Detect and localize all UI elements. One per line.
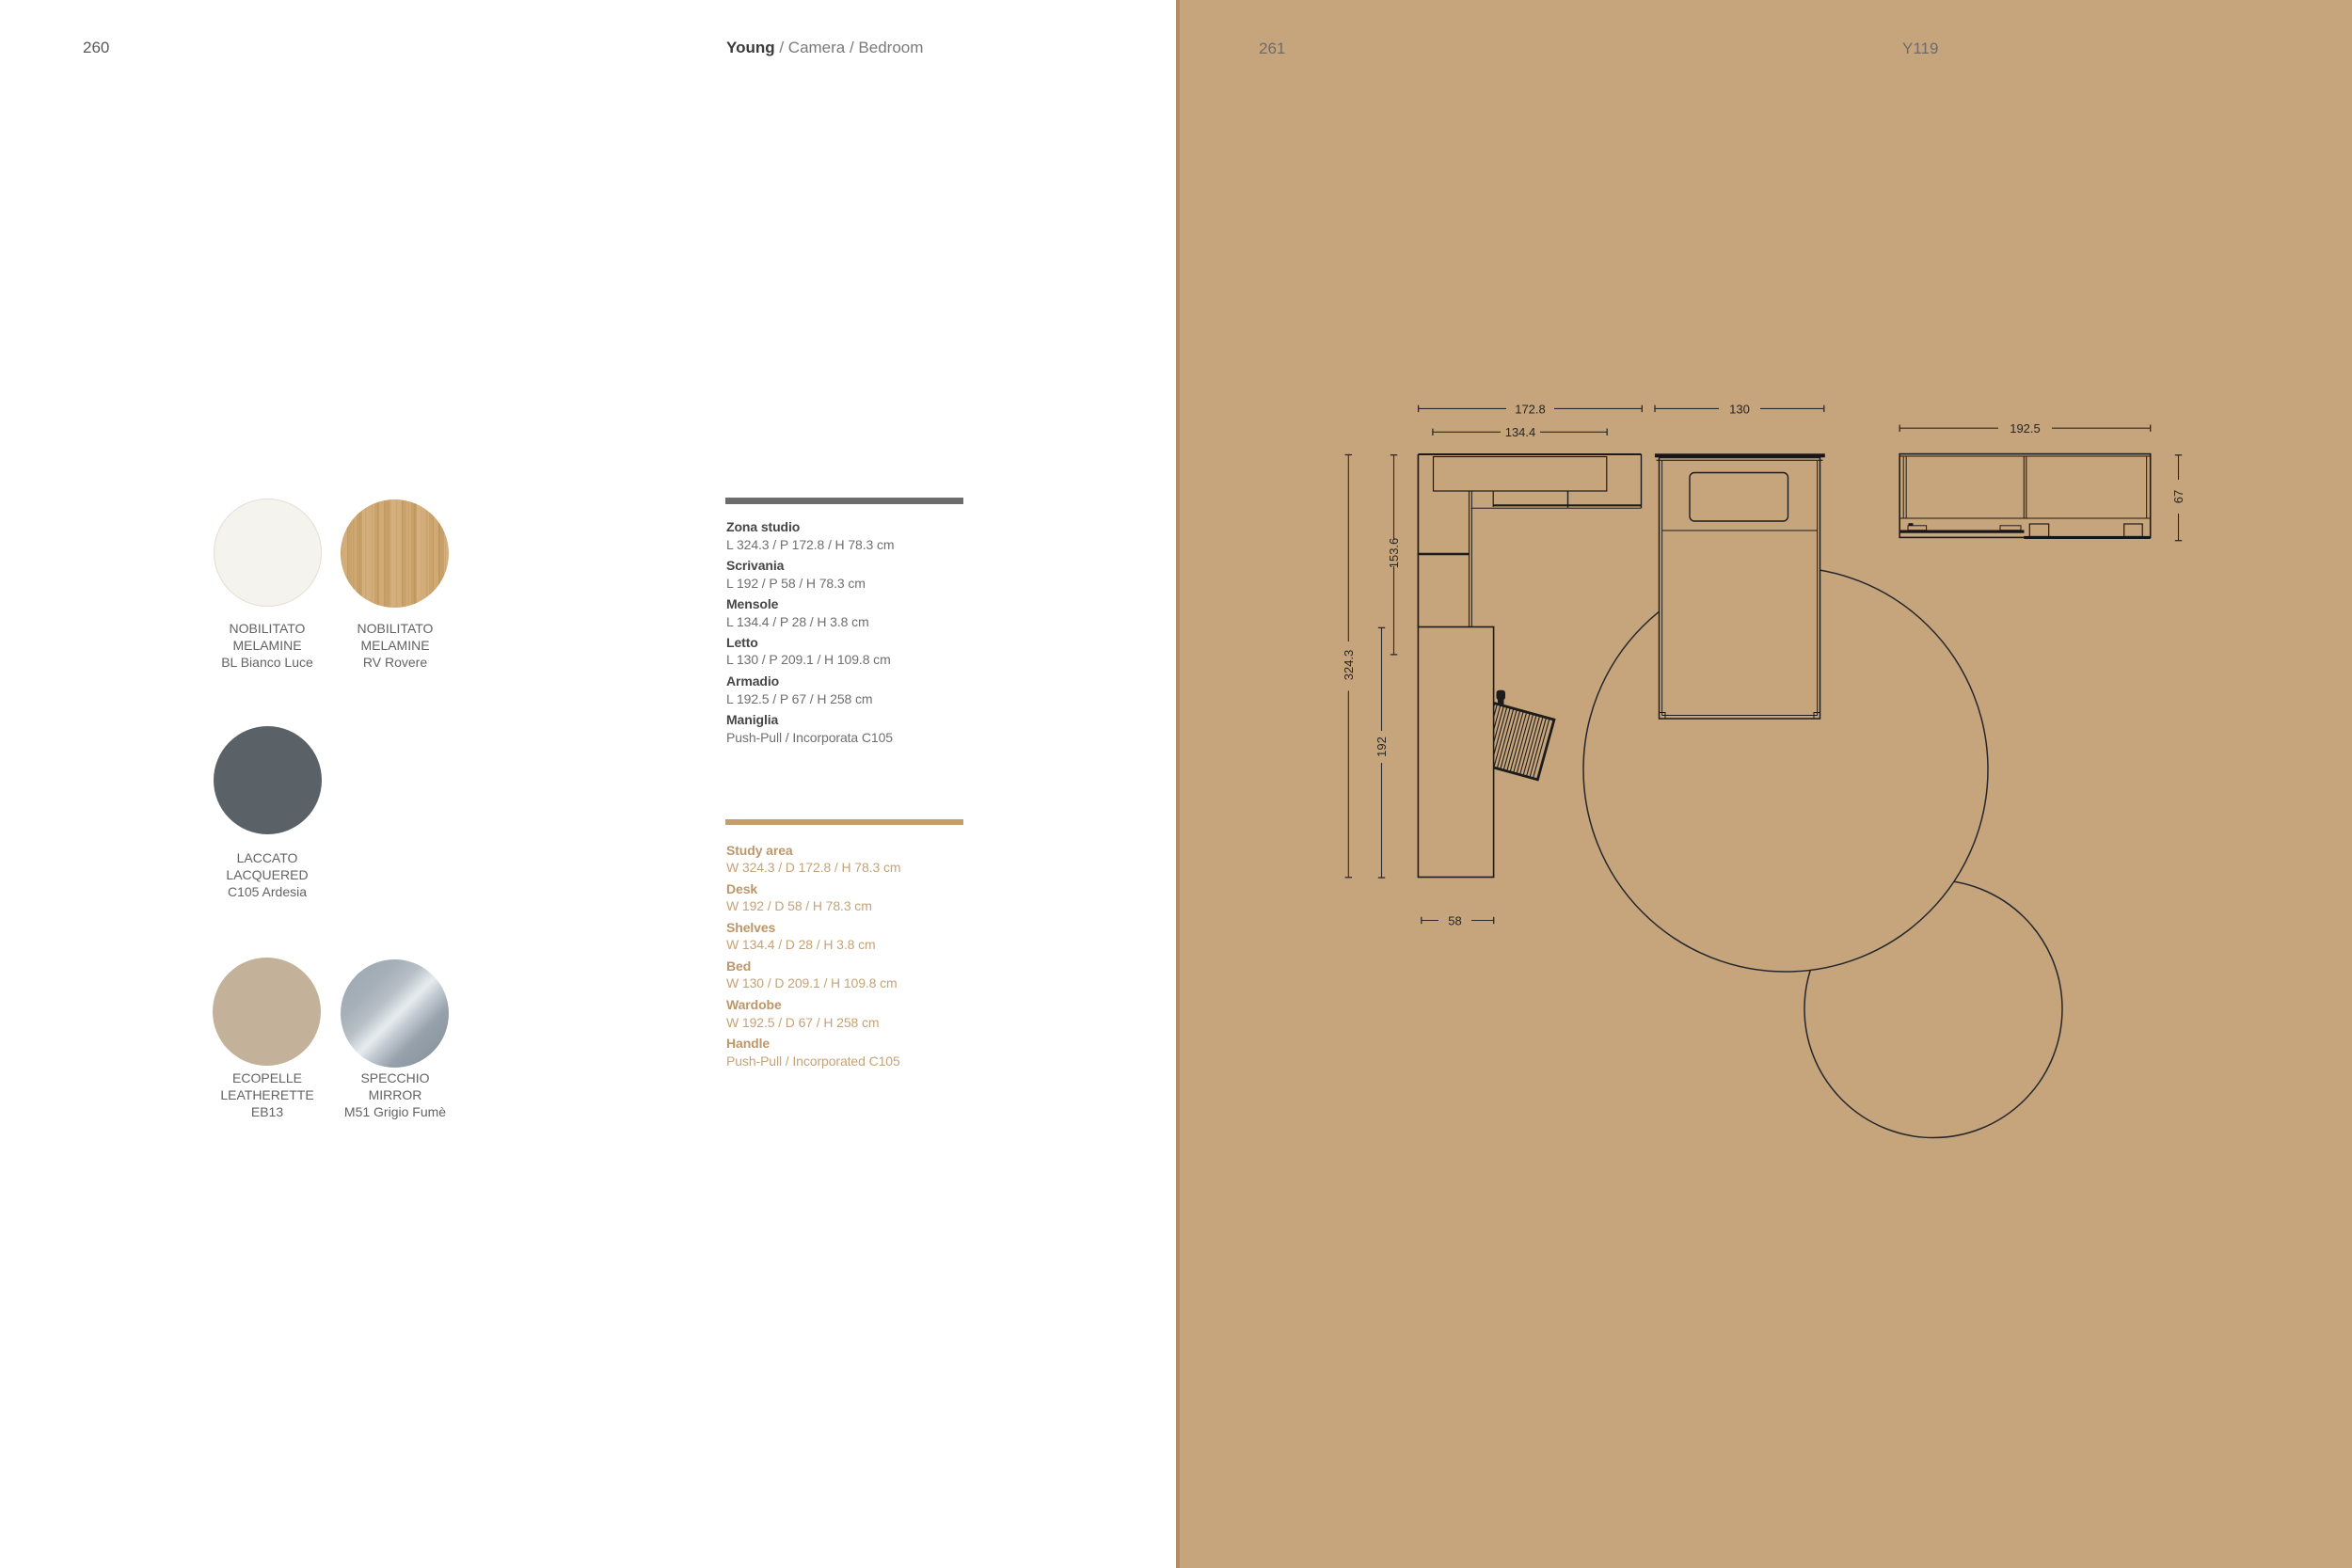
svg-text:134.4: 134.4 (1505, 425, 1536, 439)
svg-text:192.5: 192.5 (2010, 421, 2041, 436)
svg-text:153.6: 153.6 (1387, 538, 1401, 569)
svg-text:58: 58 (1448, 913, 1461, 927)
svg-text:172.8: 172.8 (1515, 402, 1546, 416)
svg-text:324.3: 324.3 (1342, 650, 1356, 681)
svg-text:67: 67 (2171, 490, 2185, 503)
svg-text:130: 130 (1729, 402, 1750, 416)
svg-text:192: 192 (1375, 736, 1389, 757)
